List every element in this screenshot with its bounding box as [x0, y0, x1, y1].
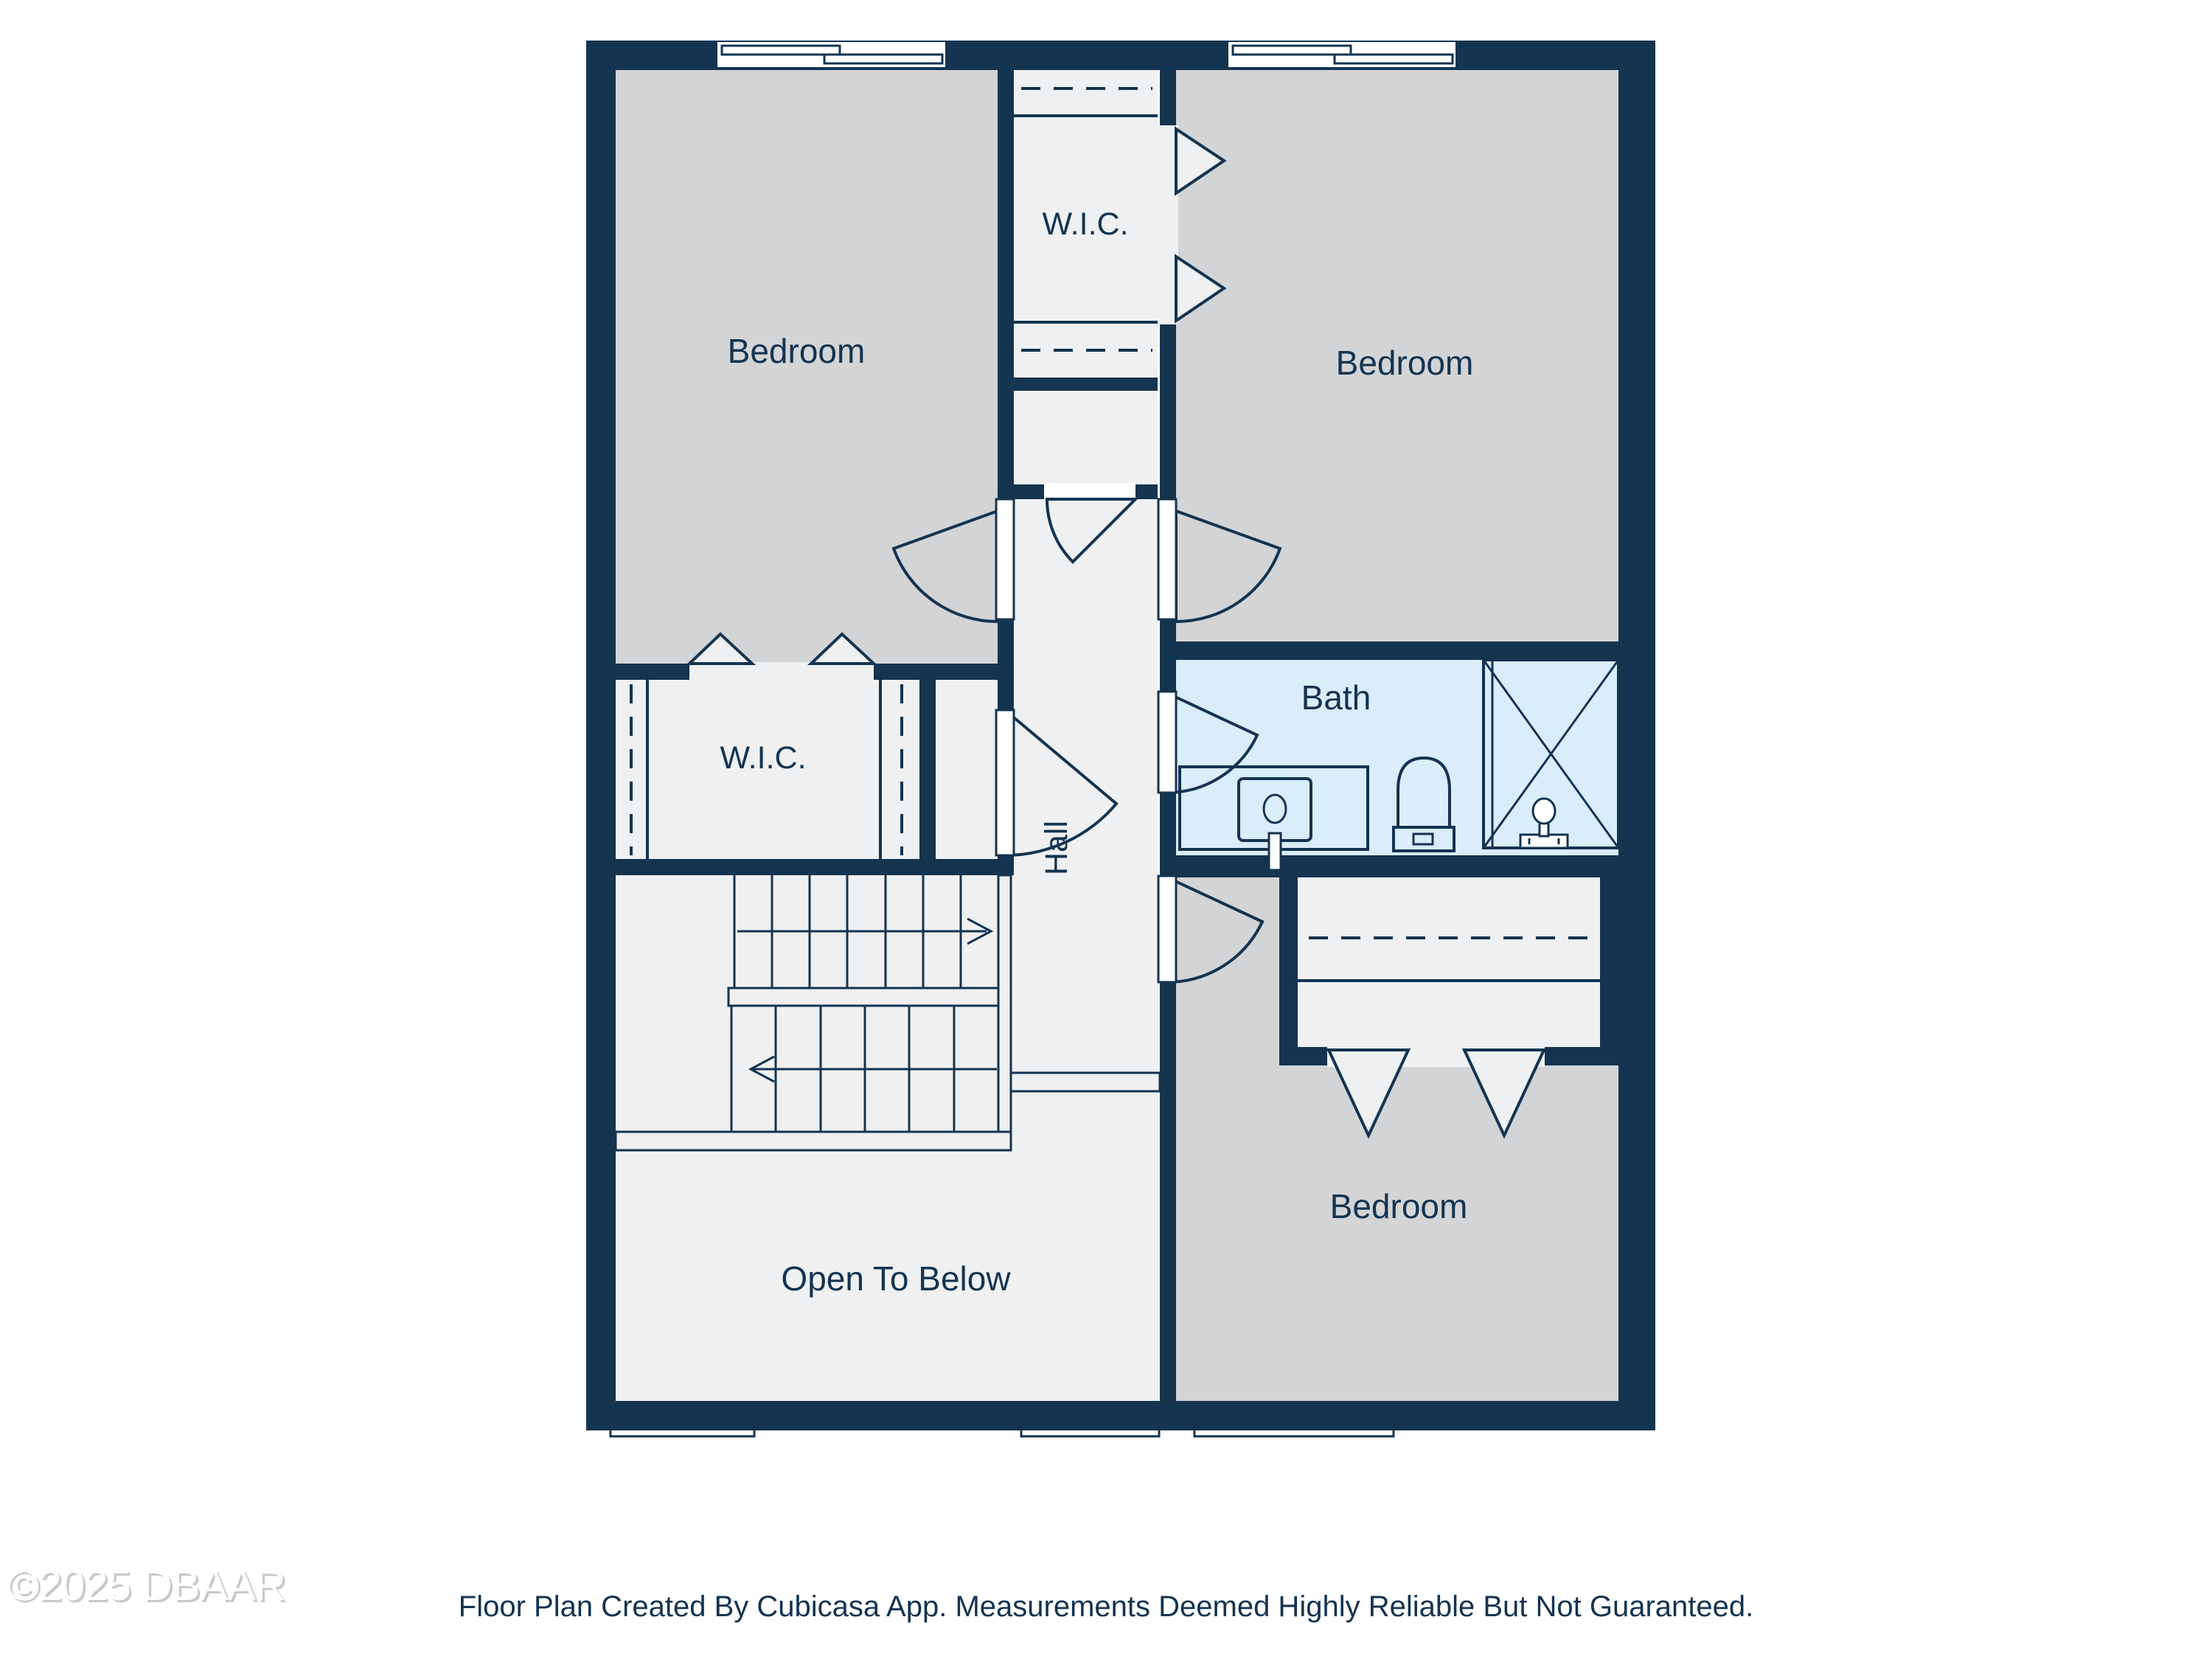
- window-icon-top-right-bedroom: [1228, 42, 1455, 67]
- stair-side-rail: [998, 875, 1011, 1150]
- stair-landing-rail: [728, 988, 1011, 1006]
- label-bedroom-top-right: Bedroom: [1336, 344, 1474, 382]
- watermark: ©2025 DBAAR ©2025 DBAAR: [7, 1562, 288, 1612]
- label-bath: Bath: [1301, 678, 1371, 717]
- watermark-text: ©2025 DBAAR: [7, 1562, 285, 1610]
- wall-exterior-left: [586, 41, 616, 1430]
- wall-wic-top-bottom: [1014, 378, 1158, 391]
- bedroom-closet-floor: [1298, 877, 1600, 1047]
- label-bedroom-bottom-right: Bedroom: [1330, 1187, 1468, 1225]
- door-leaf-bedroom-top-left: [996, 499, 1014, 619]
- label-wic-left: W.I.C.: [720, 740, 806, 776]
- wall-wic-left-right: [919, 680, 936, 859]
- door-leaf-bath: [1158, 692, 1176, 793]
- stair-bottom-rail: [616, 1132, 1011, 1150]
- door-leaf-bedroom-top-right: [1158, 499, 1176, 619]
- wall-bedroom-bath: [1176, 641, 1626, 660]
- hall-open-rail: [1011, 1073, 1160, 1091]
- floor-plan-page: Bedroom Bedroom Bedroom W.I.C. W.I.C. Ba…: [0, 0, 2212, 1659]
- wall-wic-left-bottom: [616, 859, 998, 875]
- room-floors: [616, 70, 1626, 1401]
- window-icon-top-left-bedroom: [717, 42, 945, 67]
- floor-plan-canvas: Bedroom Bedroom Bedroom W.I.C. W.I.C. Ba…: [0, 0, 2212, 1659]
- door-leaf-hall-closet: [996, 710, 1014, 855]
- door-leaf-bedroom-bottom-right: [1158, 876, 1176, 982]
- label-hall: Hall: [1039, 821, 1074, 875]
- wall-bath-bottom: [1176, 855, 1626, 877]
- wall-closet-right: [1600, 877, 1618, 1065]
- disclaimer-text: Floor Plan Created By Cubicasa App. Meas…: [459, 1590, 1753, 1623]
- label-wic-top: W.I.C.: [1042, 206, 1128, 242]
- wall-closet-left: [1279, 877, 1298, 1065]
- label-bedroom-top-left: Bedroom: [728, 332, 866, 370]
- label-open-to-below: Open To Below: [781, 1259, 1011, 1298]
- room-wic-left: [616, 680, 998, 859]
